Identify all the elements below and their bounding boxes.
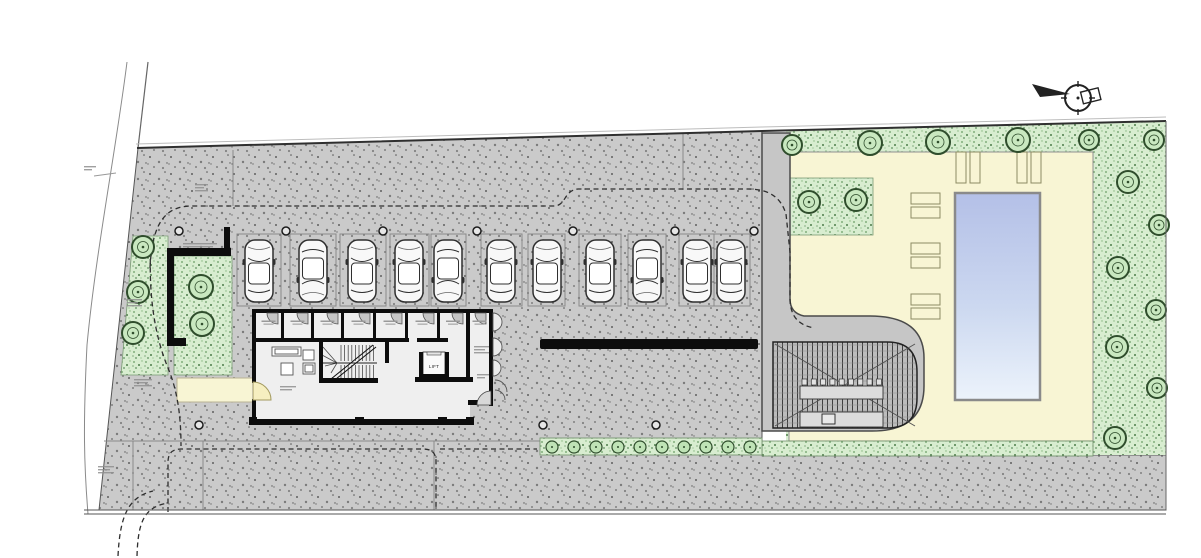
annotation-smudge [98,469,110,470]
annotation-smudge [183,243,217,244]
tree-icon [189,275,213,299]
bollard-icon [671,227,679,235]
room-label-smudge [386,324,396,325]
bollard-icon [282,227,290,235]
tree-icon [1107,257,1129,279]
tree-icon [1147,378,1167,398]
annotation-smudge [280,386,296,387]
north-arrow-icon [1032,81,1101,115]
annotation-smudge [134,379,152,380]
sun-lounger [911,294,940,305]
bollard-icon [379,227,387,235]
room-label-smudge [384,321,398,323]
shrub-icon [678,441,690,453]
shrub-icon [744,441,756,453]
tree-icon [132,236,154,258]
annotation-smudge [195,184,208,185]
sun-lounger [970,152,980,183]
room-label-smudge [418,324,428,325]
annotation-smudge [84,166,96,167]
landscape-wall [224,227,230,255]
lift-door [427,352,441,355]
bollard-icon [195,421,203,429]
room-label-smudge [352,321,366,323]
annotation-smudge [477,374,489,375]
site-plan-canvas: LIFT [0,0,1201,558]
room-label-smudge [446,321,460,323]
annotation-smudge [477,377,485,378]
landscape-wall [167,338,186,346]
annotation-smudge [98,466,114,467]
shrub-icon [656,441,668,453]
sun-lounger [1031,152,1041,183]
shrub-icon [568,441,580,453]
car-icon [584,240,617,302]
bollard-icon [539,421,547,429]
shrub-icon [612,441,624,453]
tree-icon [1104,427,1126,449]
tree-icon [798,191,820,213]
room-label-smudge [293,324,303,325]
sun-lounger [911,243,940,254]
tree-icon [1144,130,1164,150]
entrance-walkway [177,378,254,402]
car-icon [485,240,518,302]
sun-lounger [911,308,940,319]
room-label-smudge [416,321,430,323]
annotation-smudge [280,389,292,390]
bollard-icon [473,227,481,235]
annotation-smudge [127,305,142,306]
shrub-icon [546,441,558,453]
car-icon [243,240,276,302]
car-icon [346,240,379,302]
room-label-smudge [354,324,364,325]
annotation-smudge [127,302,138,303]
annotation-smudge [127,299,142,300]
annotation-smudge [84,169,92,170]
tree-icon [1006,128,1030,152]
annotation-smudge [183,246,213,247]
bollard-icon [569,227,577,235]
sun-lounger [1017,152,1027,183]
annotation-smudge [474,349,485,350]
tree-icon [190,312,214,336]
annotation-smudge [474,352,489,353]
car-icon [393,240,426,302]
annotation-smudge [134,382,148,383]
site-boundary-line-top [138,62,148,148]
room-label-smudge [323,324,333,325]
annotation-smudge [474,346,489,347]
car-icon [715,240,748,302]
tree-icon [1079,130,1099,150]
lift-label: LIFT [429,364,439,369]
tree-icon [858,131,882,155]
annotation-smudge [195,190,208,191]
dimension-tick [94,173,116,176]
shrub-icon [722,441,734,453]
vehicle-path-dashed [137,503,168,556]
car-icon [531,240,564,302]
tree-icon [122,322,144,344]
sun-lounger [911,193,940,204]
room-label-smudge [291,321,305,323]
bollard-icon [175,227,183,235]
bollard-icon [750,227,758,235]
tree-icon [1106,336,1128,358]
tree-icon [782,135,802,155]
shrub-icon [700,441,712,453]
swimming-pool [955,193,1040,400]
room-label-smudge [473,321,487,323]
boundary-wall [540,339,758,349]
sun-lounger [911,207,940,218]
car-icon [297,240,330,302]
shrub-icon [634,441,646,453]
room-label-smudge [262,321,276,323]
shrub-icon [590,441,602,453]
bollard-icon [652,421,660,429]
annotation-smudge [195,187,204,188]
car-icon [681,240,714,302]
car-icon [631,240,664,302]
annotation-smudge [98,472,114,473]
hedge-strip [762,441,1093,456]
annotation-smudge [134,385,152,386]
site-plan-drawing: LIFT [0,0,1201,558]
tree-icon [845,189,867,211]
sun-lounger [911,257,940,268]
room-label-smudge [264,324,274,325]
tree-icon [926,130,950,154]
room-label-smudge [321,321,335,323]
tree-icon [1146,300,1166,320]
landscape-wall [167,256,174,346]
tree-icon [1117,171,1139,193]
landscape-wall [167,248,231,256]
sun-lounger [956,152,966,183]
room-label-smudge [475,324,485,325]
room-label-smudge [448,324,458,325]
car-icon [432,240,465,302]
